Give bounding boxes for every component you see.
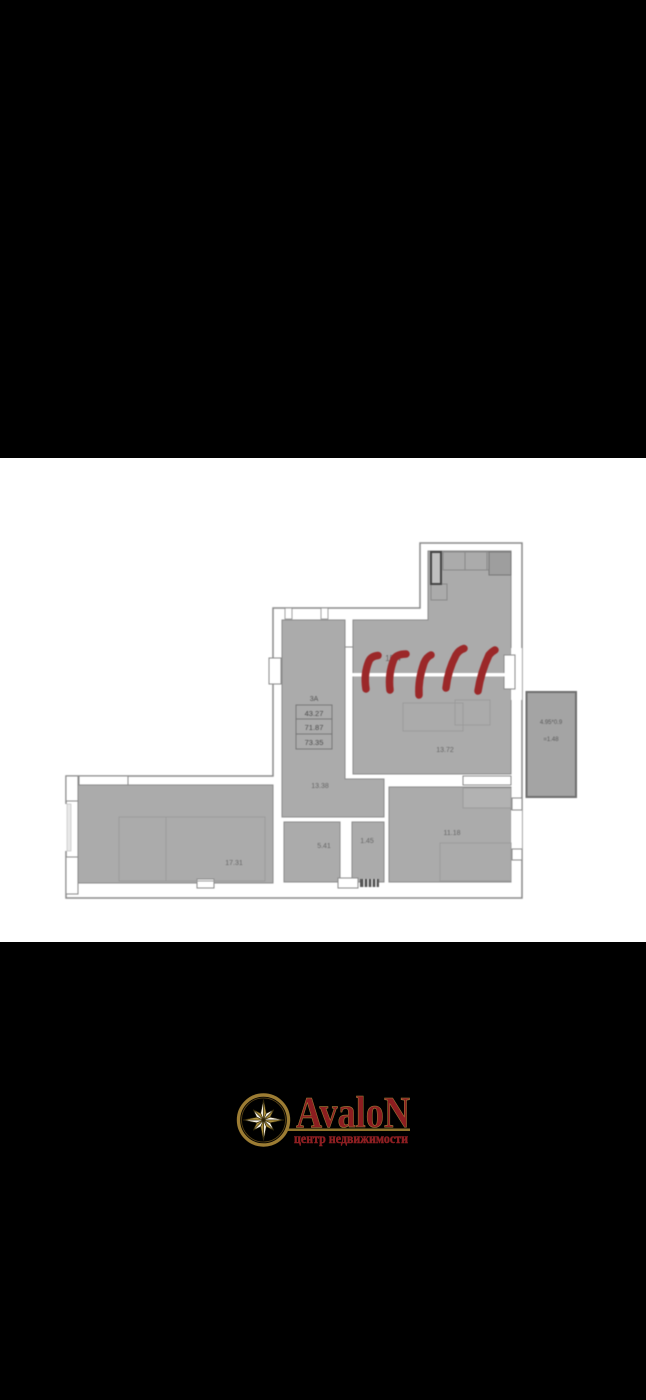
svg-text:5.41: 5.41 xyxy=(317,843,331,850)
svg-text:13.72: 13.72 xyxy=(436,747,454,754)
svg-text:центр недвижимости: центр недвижимости xyxy=(294,1131,408,1146)
svg-text:1.45: 1.45 xyxy=(360,838,374,845)
svg-text:73.35: 73.35 xyxy=(305,738,324,747)
svg-text:4.95*0.9: 4.95*0.9 xyxy=(540,720,563,726)
svg-text:43.27: 43.27 xyxy=(305,709,324,718)
svg-text:AvaloN: AvaloN xyxy=(296,1088,410,1137)
svg-text:17.31: 17.31 xyxy=(225,860,243,867)
svg-text:=1.48: =1.48 xyxy=(543,737,559,743)
svg-text:13.38: 13.38 xyxy=(311,783,329,790)
svg-text:3А: 3А xyxy=(310,696,319,703)
svg-text:11.18: 11.18 xyxy=(444,830,461,837)
svg-text:71.87: 71.87 xyxy=(305,723,324,732)
